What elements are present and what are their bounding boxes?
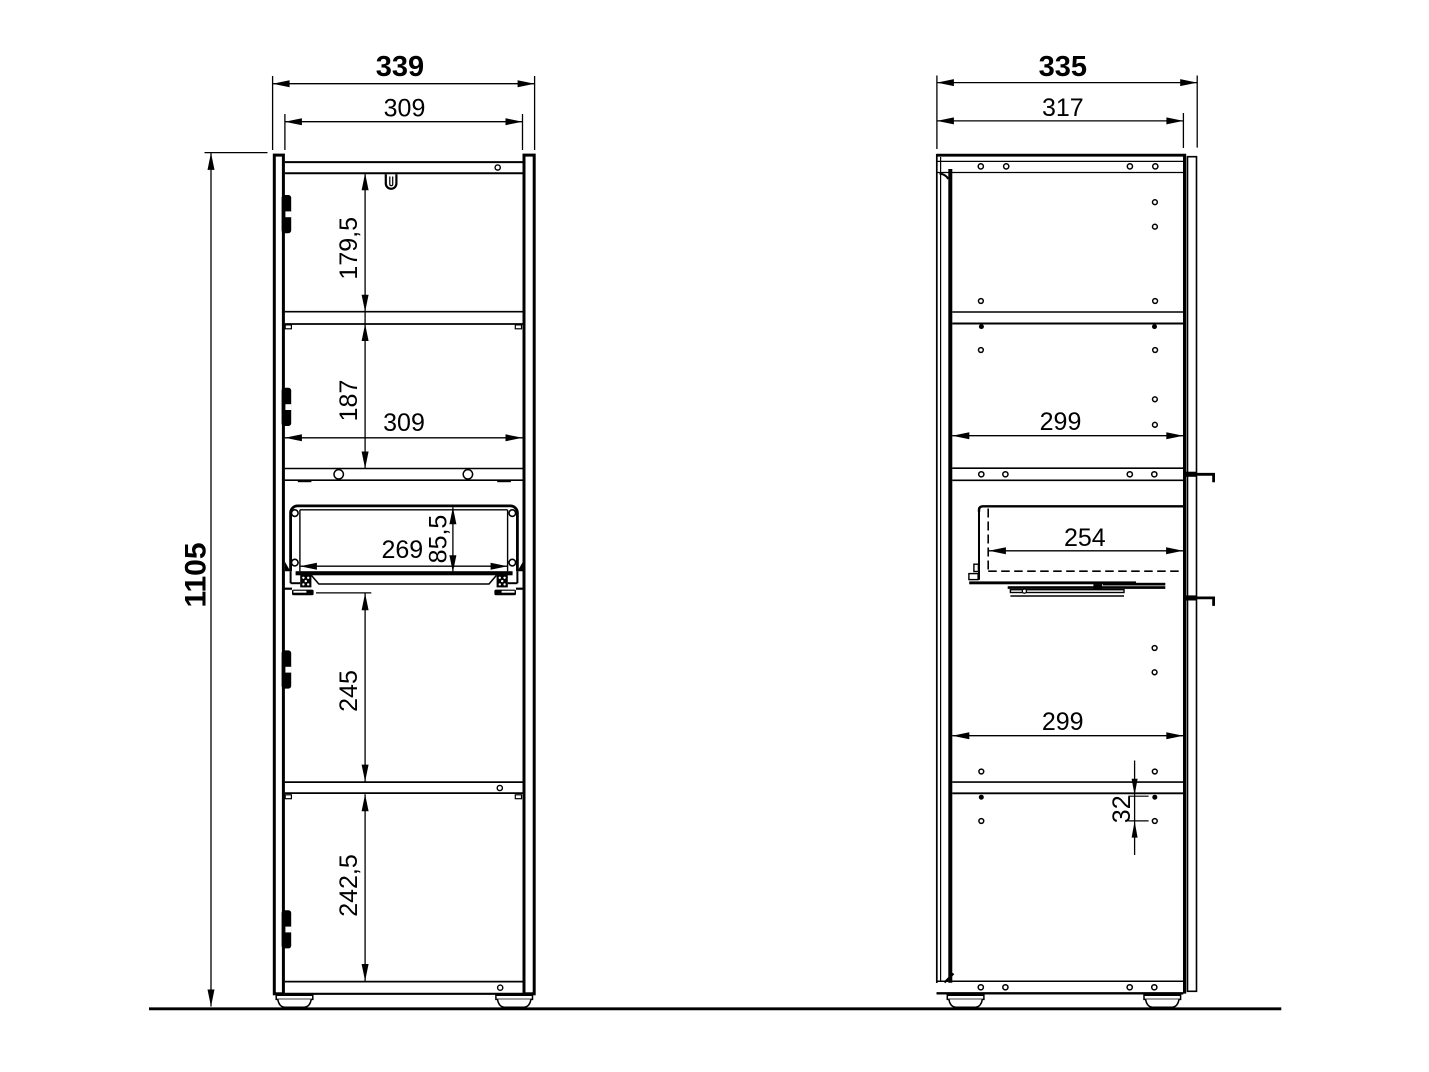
- svg-text:1105: 1105: [179, 542, 212, 607]
- svg-text:317: 317: [1042, 94, 1084, 122]
- svg-text:187: 187: [335, 380, 363, 422]
- svg-text:309: 309: [383, 409, 425, 437]
- svg-text:309: 309: [384, 94, 426, 122]
- svg-text:269: 269: [381, 536, 423, 564]
- svg-text:245: 245: [335, 670, 363, 712]
- svg-text:32: 32: [1108, 795, 1136, 823]
- svg-text:339: 339: [376, 51, 424, 83]
- svg-text:242,5: 242,5: [335, 854, 363, 917]
- svg-text:179,5: 179,5: [335, 217, 363, 280]
- svg-text:299: 299: [1040, 408, 1082, 436]
- svg-text:254: 254: [1064, 524, 1106, 552]
- svg-text:299: 299: [1042, 708, 1084, 736]
- svg-text:85,5: 85,5: [424, 515, 452, 564]
- svg-text:335: 335: [1039, 51, 1087, 83]
